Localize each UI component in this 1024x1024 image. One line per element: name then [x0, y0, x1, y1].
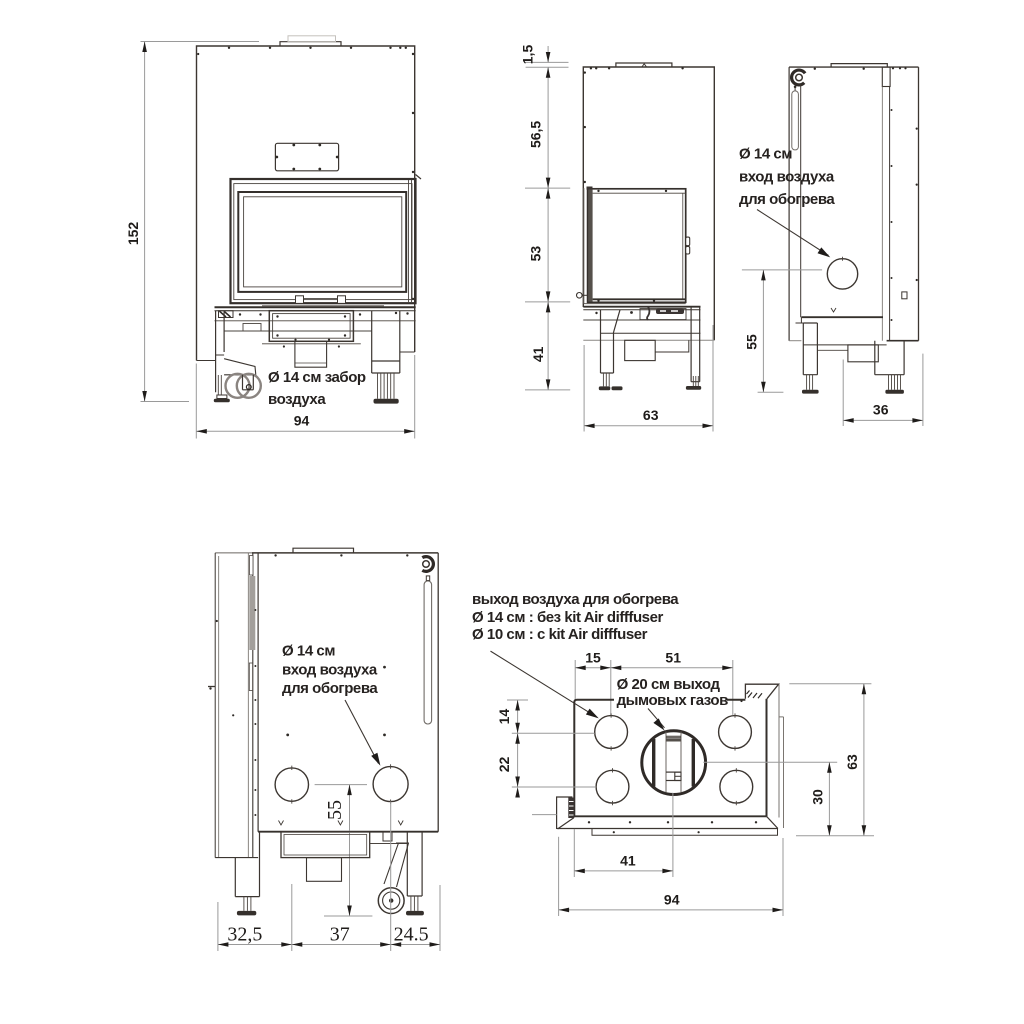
svg-text:Ø 20 см выход: Ø 20 см выход [617, 676, 721, 693]
svg-text:94: 94 [664, 891, 680, 907]
svg-text:30: 30 [809, 789, 825, 805]
svg-text:вход воздуха: вход воздуха [739, 168, 835, 185]
svg-text:выход воздуха для обогрева: выход воздуха для обогрева [472, 591, 679, 608]
svg-text:15: 15 [585, 649, 601, 665]
svg-text:41: 41 [530, 346, 546, 362]
svg-text:Ø 14 см: Ø 14 см [739, 146, 792, 163]
svg-text:55: 55 [744, 334, 760, 350]
svg-text:56,5: 56,5 [528, 121, 544, 148]
svg-text:Ø 14 см забор: Ø 14 см забор [268, 369, 366, 386]
svg-text:37: 37 [330, 924, 350, 946]
svg-text:1,5: 1,5 [520, 45, 536, 65]
svg-text:63: 63 [643, 407, 659, 423]
svg-text:Ø 10 см : с kit Air difffuser: Ø 10 см : с kit Air difffuser [472, 626, 648, 643]
svg-text:41: 41 [620, 852, 636, 868]
svg-text:Ø 14 см: Ø 14 см [282, 643, 335, 660]
svg-text:для обогрева: для обогрева [282, 680, 378, 697]
svg-text:51: 51 [665, 649, 681, 665]
svg-text:для обогрева: для обогрева [739, 191, 835, 208]
svg-text:53: 53 [528, 246, 544, 262]
svg-text:дымовых газов: дымовых газов [617, 692, 729, 709]
svg-text:55: 55 [324, 800, 346, 820]
svg-text:94: 94 [294, 413, 310, 429]
svg-text:32,5: 32,5 [227, 924, 262, 946]
svg-text:152: 152 [125, 222, 141, 246]
svg-text:14: 14 [496, 709, 512, 725]
svg-text:Ø 14 см : без kit Air difffuse: Ø 14 см : без kit Air difffuser [472, 609, 663, 626]
svg-text:22: 22 [496, 757, 512, 773]
svg-text:36: 36 [873, 402, 889, 418]
svg-text:воздуха: воздуха [268, 391, 326, 408]
svg-text:24.5: 24.5 [394, 924, 429, 946]
svg-text:63: 63 [844, 754, 860, 770]
svg-text:вход воздуха: вход воздуха [282, 661, 378, 678]
